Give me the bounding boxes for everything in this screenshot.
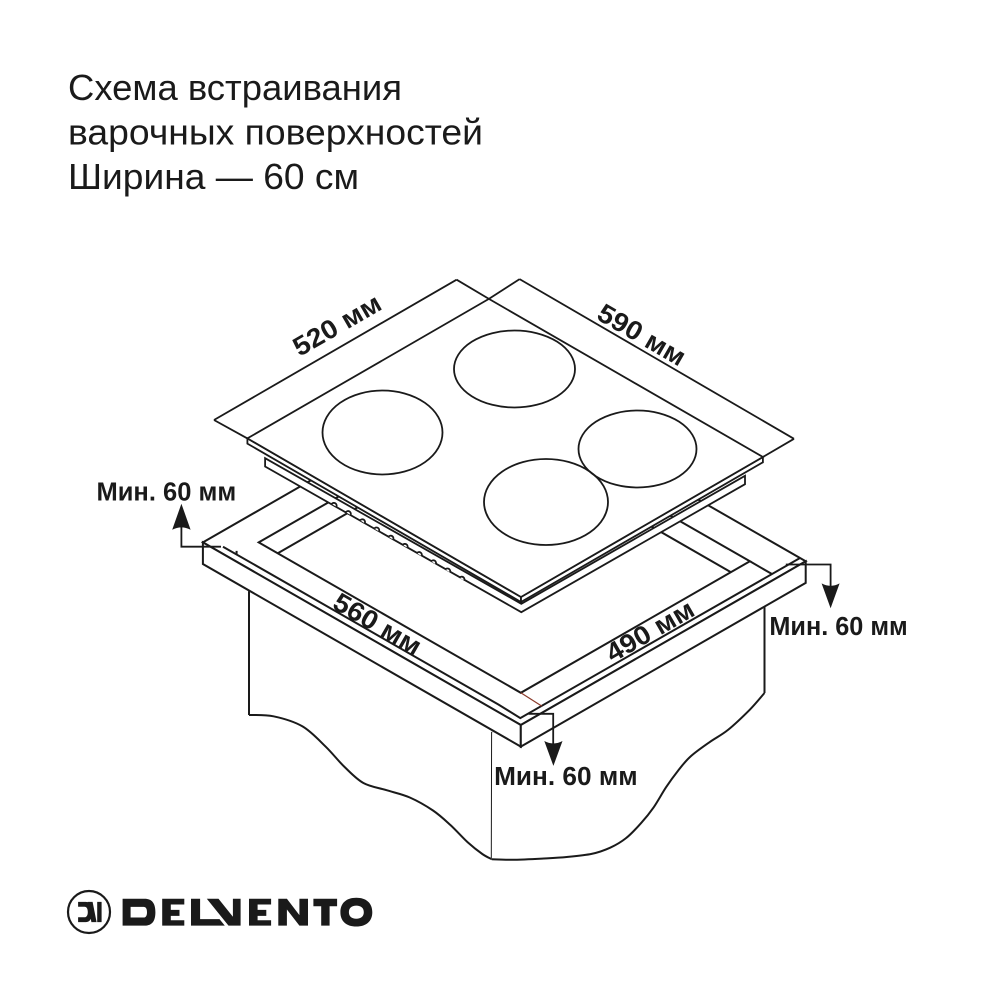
svg-text:Схема встраивания: Схема встраивания: [68, 67, 402, 108]
svg-text:Ширина — 60 см: Ширина — 60 см: [68, 156, 359, 197]
svg-text:Мин. 60 мм: Мин. 60 мм: [494, 761, 637, 791]
svg-text:Мин. 60 мм: Мин. 60 мм: [769, 611, 907, 641]
svg-text:варочных поверхностей: варочных поверхностей: [68, 112, 483, 153]
svg-text:Мин. 60 мм: Мин. 60 мм: [97, 477, 237, 507]
